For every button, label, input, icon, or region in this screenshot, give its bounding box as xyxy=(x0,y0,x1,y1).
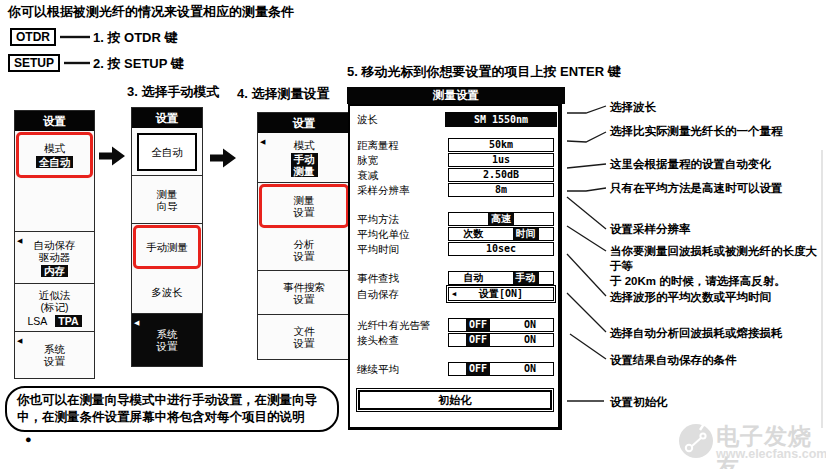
row-event-search: 事件查找 自动 手动 xyxy=(350,271,558,286)
menu2-item-fullauto[interactable]: 全自动 xyxy=(132,128,202,176)
row-attenuation: 衰减 2.50dB xyxy=(350,168,558,183)
menu2-item-system[interactable]: ◀ 系统 设置 xyxy=(132,314,202,366)
option-off[interactable]: OFF xyxy=(466,319,490,331)
measurement-settings-dialog: 波长 SM 1550nm 距离量程 50km 脉宽 1us 衰减 2.50dB … xyxy=(348,104,562,430)
row-averaging-method: 平均方法 高速 xyxy=(350,212,558,227)
distance-range-label: 距离量程 xyxy=(357,139,399,153)
submenu-marker-icon: ◀ xyxy=(17,235,22,247)
menu3-item-event-search-setup[interactable]: 事件搜索 设置 xyxy=(258,271,350,315)
averaging-time-field[interactable]: 10sec xyxy=(448,242,554,256)
step5-label: 5. 移动光标到你想要设置的项目上按 ENTER 键 xyxy=(347,63,621,81)
menu2-item-multiwavelength[interactable]: 多波长 xyxy=(132,270,202,314)
row-wavelength: 波长 SM 1550nm xyxy=(350,112,558,127)
system-label: 系统 设置 xyxy=(44,343,65,367)
initialize-button[interactable]: 初始化 xyxy=(358,390,552,410)
connector-check-field[interactable]: OFF ON xyxy=(448,333,554,347)
continue-averaging-label: 继续平均 xyxy=(357,363,399,377)
system-label: 系统 设置 xyxy=(157,328,178,352)
attenuation-label: 衰减 xyxy=(357,169,378,183)
option-manual[interactable]: 手动 xyxy=(513,272,539,284)
manual-page: 你可以根据被测光纤的情况来设置相应的测量条件 OTDR 1. 按 OTDR 键 … xyxy=(0,0,826,469)
step3-label: 3. 选择手动模式 xyxy=(127,83,219,101)
page-title: 你可以根据被测光纤的情况来设置相应的测量条件 xyxy=(8,3,294,21)
menu1-item-autosave[interactable]: ◀ 自动保存 驱动器 内存 xyxy=(15,232,94,284)
averaging-unit-label: 平均化单位 xyxy=(357,228,410,242)
submenu-marker-icon: ◀ xyxy=(17,335,22,347)
row-light-alarm: 光纤中有光告警 OFF ON xyxy=(350,318,558,333)
watermark-brand: 电子发烧友 xyxy=(716,421,826,469)
annotation-high-reflection: 当你要测量回波损耗或被测光纤的长度大于等 于 20Km 的时候，请选择高反射。 xyxy=(610,244,822,289)
annotation-auto-change: 这里会根据量程的设置自动变化 xyxy=(610,157,822,172)
mode-label: 模式 xyxy=(294,139,315,151)
dialog-title-bar: 测量设置 xyxy=(347,87,565,104)
wavelength-field[interactable]: SM 1550nm xyxy=(445,112,557,127)
menu1-item-empty xyxy=(15,179,94,232)
event-search-field[interactable]: 自动 手动 xyxy=(448,271,554,285)
menu1-title: 设置 xyxy=(15,111,94,131)
option-auto[interactable]: 自动 xyxy=(464,272,484,284)
right-arrow-icon xyxy=(99,147,125,166)
sampling-resolution-label: 采样分辨率 xyxy=(357,184,410,198)
averaging-unit-field[interactable]: 次数 时间 xyxy=(448,227,554,241)
sampling-resolution-field[interactable]: 8m xyxy=(448,183,554,197)
menu3-item-measure-setup[interactable]: 测量 设置 xyxy=(259,184,349,228)
mode-value: 手动 测量 xyxy=(291,153,318,177)
key-connector-lines xyxy=(60,37,90,63)
menu3-item-mode[interactable]: ◀ 模式 手动 测量 xyxy=(258,133,350,183)
autosave-label: 自动保存 驱动器 xyxy=(34,239,76,263)
row-distance-range: 距离量程 50km xyxy=(350,138,558,153)
step1-label: 1. 按 OTDR 键 xyxy=(93,29,178,47)
menu3-item-file-setup[interactable]: 文件 设置 xyxy=(258,315,350,359)
submenu-marker-icon: ◀ xyxy=(452,288,456,300)
menu1-item-approximation[interactable]: 近似法 (标记) LSA TPA xyxy=(15,284,94,332)
option-on[interactable]: ON xyxy=(524,334,536,346)
option-count[interactable]: 次数 xyxy=(464,228,484,240)
right-arrow-icon xyxy=(210,149,236,168)
menu3-title: 设置 xyxy=(258,113,350,133)
auto-save-value: 设置[ON] xyxy=(479,288,523,300)
menu1-item-system[interactable]: ◀ 系统 设置 xyxy=(15,332,94,378)
row-averaging-unit: 平均化单位 次数 时间 xyxy=(350,227,558,242)
auto-save-field[interactable]: ◀ 设置[ON] xyxy=(448,287,554,301)
annotation-initialize: 设置初始化 xyxy=(610,395,822,410)
annotation-resolution: 设置采样分辨率 xyxy=(610,222,822,237)
bullet-icon: ● xyxy=(25,433,32,445)
annotation-auto-analysis: 选择自动分析回波损耗或熔接损耗 xyxy=(610,326,822,341)
connector-check-label: 接头检查 xyxy=(357,334,399,348)
wavelength-label: 波长 xyxy=(357,113,378,127)
pulse-width-label: 脉宽 xyxy=(357,154,378,168)
light-alarm-label: 光纤中有光告警 xyxy=(357,319,431,333)
option-time[interactable]: 时间 xyxy=(513,228,539,240)
row-connector-check: 接头检查 OFF ON xyxy=(350,333,558,348)
event-search-label: 事件查找 xyxy=(357,272,399,286)
annotation-wavelength: 选择波长 xyxy=(610,100,822,115)
distance-range-field[interactable]: 50km xyxy=(448,138,554,152)
step4-label: 4. 选择测量设置 xyxy=(237,85,329,103)
option-off[interactable]: OFF xyxy=(466,334,490,346)
attenuation-field[interactable]: 2.50dB xyxy=(448,168,554,182)
option-on[interactable]: ON xyxy=(524,363,536,375)
mode-label: 模式 xyxy=(44,142,65,154)
pulse-width-field[interactable]: 1us xyxy=(448,153,554,167)
approximation-label: 近似法 (标记) xyxy=(39,289,71,313)
option-on[interactable]: ON xyxy=(524,319,536,331)
settings-menu-3: 设置 ◀ 模式 手动 测量 测量 设置 分析 设置 事件搜索 设置 文件 设置 xyxy=(257,112,351,360)
averaging-method-value: 高速 xyxy=(488,213,514,225)
averaging-method-field[interactable]: 高速 xyxy=(448,212,554,226)
row-averaging-time: 平均时间 10sec xyxy=(350,242,558,257)
row-auto-save: 自动保存 ◀ 设置[ON] xyxy=(350,287,558,302)
settings-menu-1: 设置 模式 全自动 ◀ 自动保存 驱动器 内存 近似法 (标记) LSA TPA… xyxy=(14,110,95,379)
row-continue-averaging: 继续平均 OFF ON xyxy=(350,362,558,377)
annotation-range: 选择比实际测量光纤长的一个量程 xyxy=(610,124,822,139)
setup-key-button[interactable]: SETUP xyxy=(8,54,60,72)
submenu-marker-icon: ◀ xyxy=(134,317,139,329)
continue-averaging-field[interactable]: OFF ON xyxy=(448,362,554,376)
elecfans-logo-icon xyxy=(679,421,713,458)
annotation-highspeed-only: 只有在平均方法是高速时可以设置 xyxy=(610,181,822,196)
approx-option-tpa[interactable]: TPA xyxy=(55,315,81,327)
menu2-item-wizard[interactable]: 测量 向导 xyxy=(132,176,202,224)
row-pulse-width: 脉宽 1us xyxy=(350,153,558,168)
annotation-autosave-condition: 设置结果自动保存的条件 xyxy=(610,353,822,368)
option-off[interactable]: OFF xyxy=(466,363,490,375)
menu1-item-mode[interactable]: 模式 全自动 xyxy=(16,132,93,178)
note-box: 你也可以在测量向导模式中进行手动设置，在测量向导 中，在测量条件设置屏幕中将包含… xyxy=(5,386,339,432)
auto-save-label: 自动保存 xyxy=(357,288,399,302)
annotation-leader-lines xyxy=(567,106,606,401)
approx-option-lsa[interactable]: LSA xyxy=(27,315,47,327)
annotation-averaging: 选择波形的平均次数或平均时间 xyxy=(610,290,822,305)
step2-label: 2. 按 SETUP 键 xyxy=(93,55,184,73)
light-alarm-field[interactable]: OFF ON xyxy=(448,318,554,332)
settings-menu-2: 设置 全自动 测量 向导 手动测量 多波长 ◀ 系统 设置 xyxy=(131,107,203,367)
row-sampling-resolution: 采样分辨率 8m xyxy=(350,183,558,198)
otdr-key-button[interactable]: OTDR xyxy=(10,28,56,46)
menu3-item-analysis-setup[interactable]: 分析 设置 xyxy=(258,229,350,271)
menu2-item-manual[interactable]: 手动测量 xyxy=(133,225,201,269)
autosave-value: 内存 xyxy=(41,265,68,277)
fullauto-label: 全自动 xyxy=(137,133,197,171)
averaging-time-label: 平均时间 xyxy=(357,243,399,257)
watermark-site: www.elecfans.com xyxy=(716,447,826,461)
menu2-title: 设置 xyxy=(132,108,202,128)
averaging-method-label: 平均方法 xyxy=(357,213,399,227)
submenu-marker-icon: ◀ xyxy=(260,136,265,148)
mode-value: 全自动 xyxy=(36,156,74,168)
